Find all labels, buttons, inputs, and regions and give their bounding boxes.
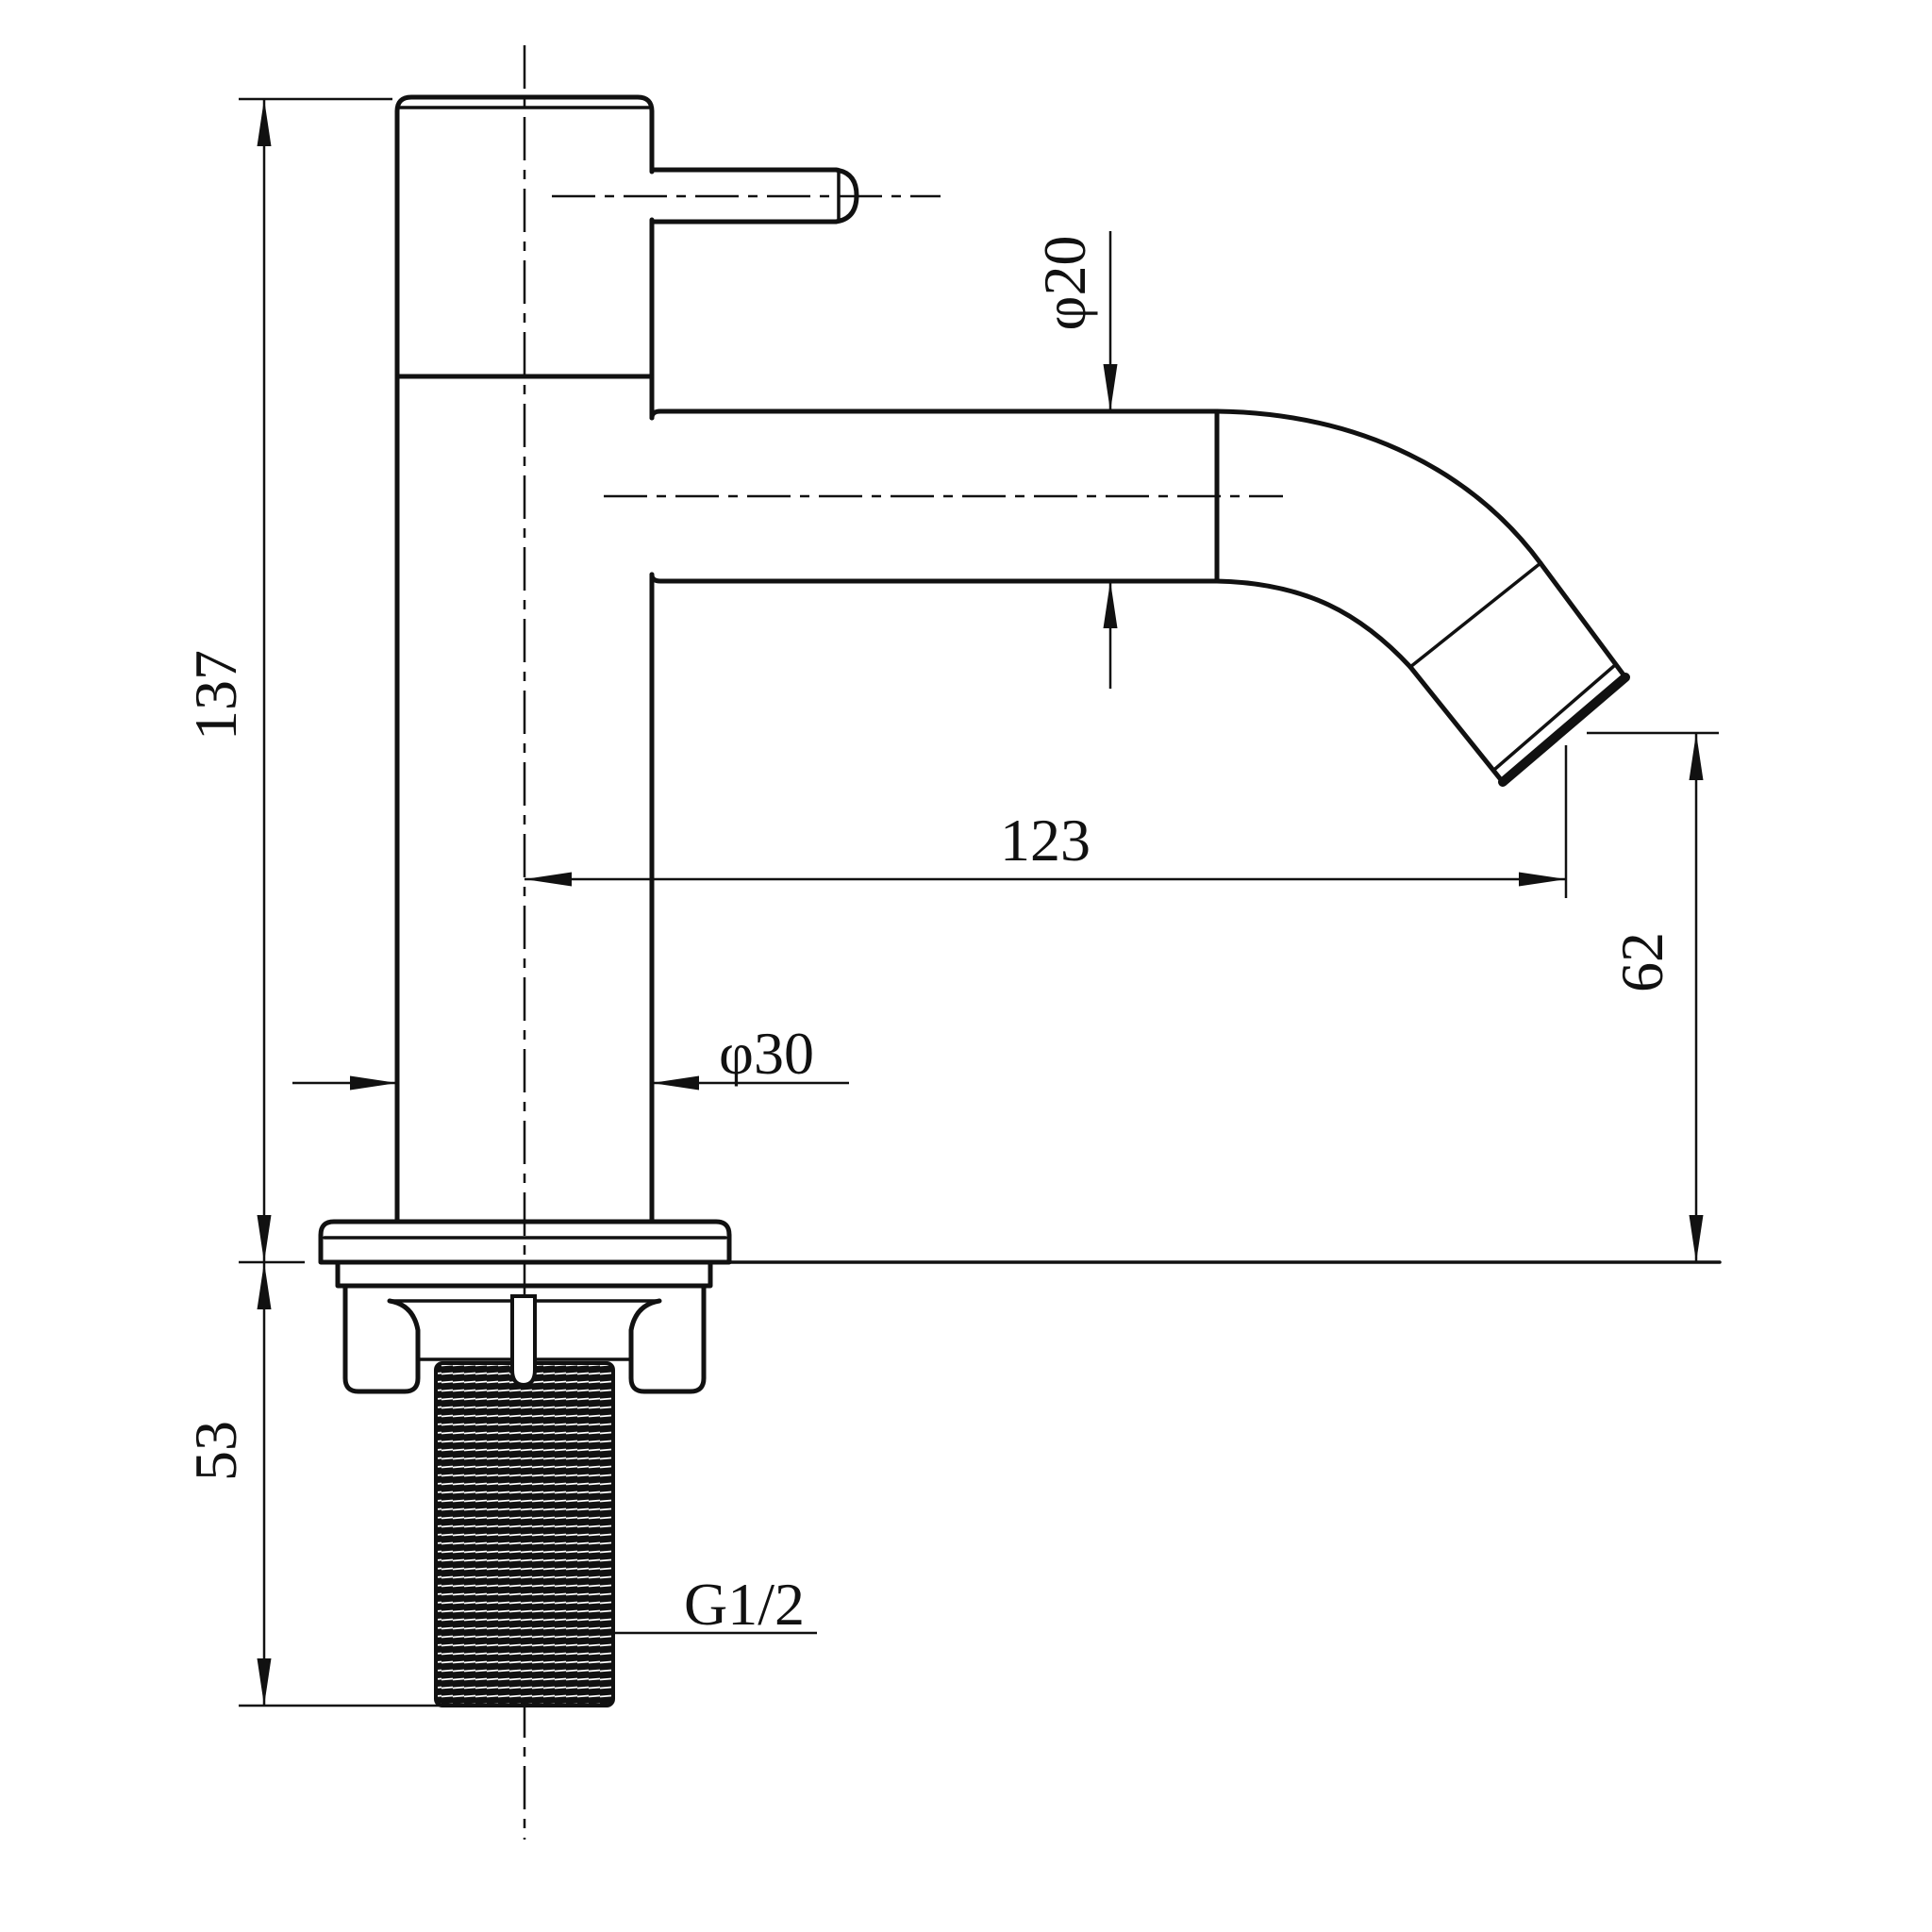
faucet-outline — [321, 97, 1720, 1706]
drain-rod-slot — [512, 1296, 535, 1385]
dimension-137: 137 — [182, 99, 392, 1262]
thread-label-leader: G1/2 — [613, 1571, 817, 1638]
dimension-phi20: φ20 — [1031, 231, 1110, 689]
dim-total-height-label: 137 — [182, 650, 249, 741]
threaded-shank — [436, 1296, 613, 1706]
dim-shank-length-label: 53 — [182, 1421, 249, 1481]
dimension-123: 123 — [525, 745, 1566, 898]
drawing-canvas: 137 53 φ30 123 φ20 62 G1/2 — [0, 0, 1932, 1932]
dim-spout-diameter-label: φ20 — [1031, 236, 1098, 331]
thread-size-label: G1/2 — [684, 1571, 805, 1638]
dim-outlet-height-label: 62 — [1608, 932, 1675, 992]
centerlines — [525, 45, 1283, 1840]
spout — [652, 411, 1541, 667]
dim-spout-reach-label: 123 — [1000, 807, 1091, 874]
dimension-53: 53 — [182, 1262, 443, 1706]
dim-body-diameter-label: φ30 — [719, 1020, 814, 1087]
faucet-technical-drawing: 137 53 φ30 123 φ20 62 G1/2 — [0, 0, 1932, 1932]
dimension-phi30: φ30 — [292, 1020, 849, 1087]
dimension-62: 62 — [1587, 733, 1719, 1262]
spout-aerator — [1410, 563, 1625, 782]
